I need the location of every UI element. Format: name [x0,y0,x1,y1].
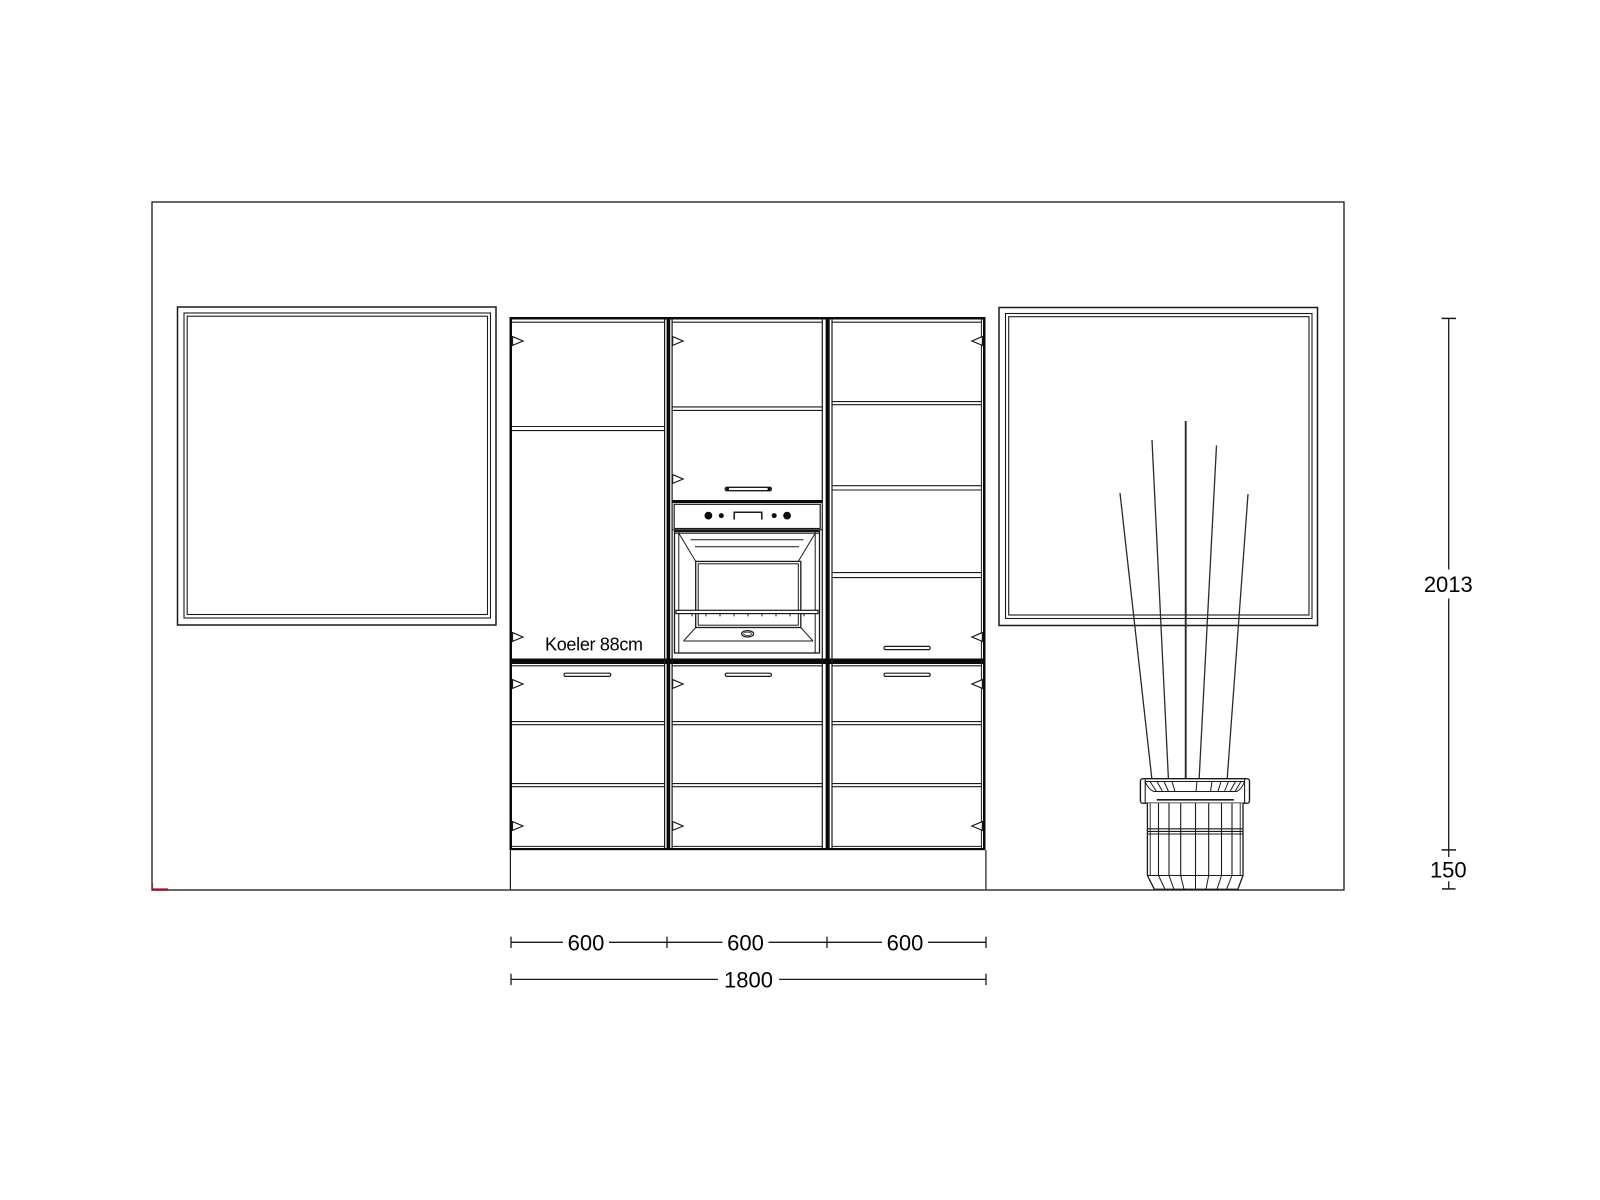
svg-text:2013: 2013 [1424,572,1473,597]
svg-text:Koeler 88cm: Koeler 88cm [545,634,643,654]
svg-text:600: 600 [887,930,924,955]
svg-text:1800: 1800 [724,967,773,992]
svg-text:600: 600 [568,930,605,955]
svg-text:600: 600 [727,930,764,955]
svg-text:150: 150 [1430,858,1467,883]
